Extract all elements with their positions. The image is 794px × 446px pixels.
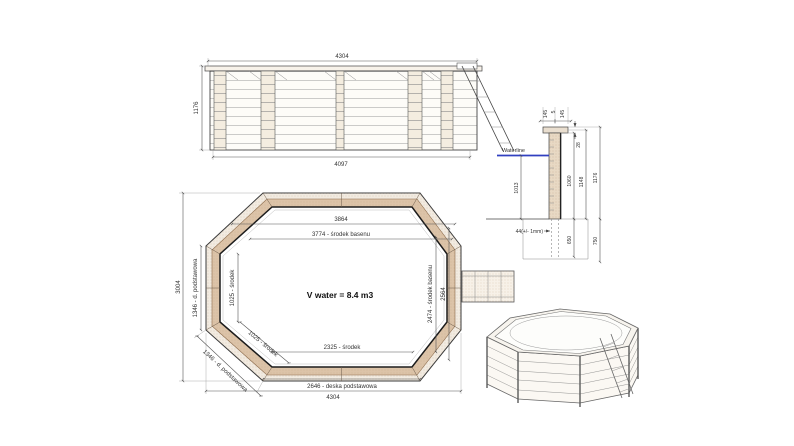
cs-dim-1148-label: 1148 <box>579 176 585 187</box>
pv-dim-2325-label: 2325 - środek <box>324 345 362 351</box>
cs-dim-1176-label: 1176 <box>593 172 599 183</box>
plan-view: V water = 8.4 m3 3864 3774 - środek base… <box>176 193 514 401</box>
extension-line <box>257 381 263 392</box>
pv-volume-label: V water = 8.4 m3 <box>307 290 374 300</box>
buried-box <box>523 219 588 259</box>
cs-dim-28-label: 28 <box>576 142 582 148</box>
se-dim-top-label: 4304 <box>335 54 349 60</box>
wall-texture <box>549 133 561 219</box>
water-edge <box>220 207 447 367</box>
cs-dim-5-label: 5 <box>551 110 557 113</box>
pv-dim-2564-label: 2564 <box>441 287 447 301</box>
pv-dim-2474-label: 2474 - środek basenu <box>428 265 434 323</box>
ladder-plan-view <box>462 271 514 302</box>
cs-dim-145-right-label: 145 <box>560 110 566 119</box>
cs-waterline-label: Waterline <box>502 148 525 154</box>
pv-dim-2646-label: 2646 - deska podstawowa <box>307 384 377 390</box>
cs-dim-145-left-label: 145 <box>543 110 549 119</box>
extension-line <box>194 330 206 338</box>
cs-dim-1060-label: 1060 <box>567 175 573 186</box>
pv-dim-3774-label: 3774 - środek basenu <box>312 232 370 238</box>
top-rail <box>205 66 482 71</box>
cs-dim-750-label: 750 <box>593 237 599 246</box>
drawing-canvas: 4304 <box>0 0 794 446</box>
cs-dim-1013-label: 1013 <box>514 182 520 193</box>
se-dim-bottom-label: 4097 <box>334 162 348 168</box>
pv-dim-1025-left-label: 1025 - środek <box>230 269 236 307</box>
cross-section-view: 145 5 145 28 Waterline 1013 <box>486 107 602 262</box>
cs-dim-650-label: 650 <box>567 236 573 245</box>
pv-dim-3864-label: 3864 <box>334 217 348 223</box>
pv-dim-4304-label: 4304 <box>326 395 340 401</box>
isometric-view <box>487 309 638 407</box>
coping-board <box>543 127 568 133</box>
pv-dim-1346-left-label: 1346 - d. podstawowa <box>193 258 199 317</box>
pool-technical-drawing: 4304 <box>0 0 794 446</box>
se-dim-left-label: 1176 <box>194 101 200 115</box>
pv-dim-3004-label: 3004 <box>176 280 182 294</box>
cs-dim-44-label: 44(+/- 1mm) <box>516 229 544 235</box>
side-elevation-view: 4304 <box>194 54 514 168</box>
